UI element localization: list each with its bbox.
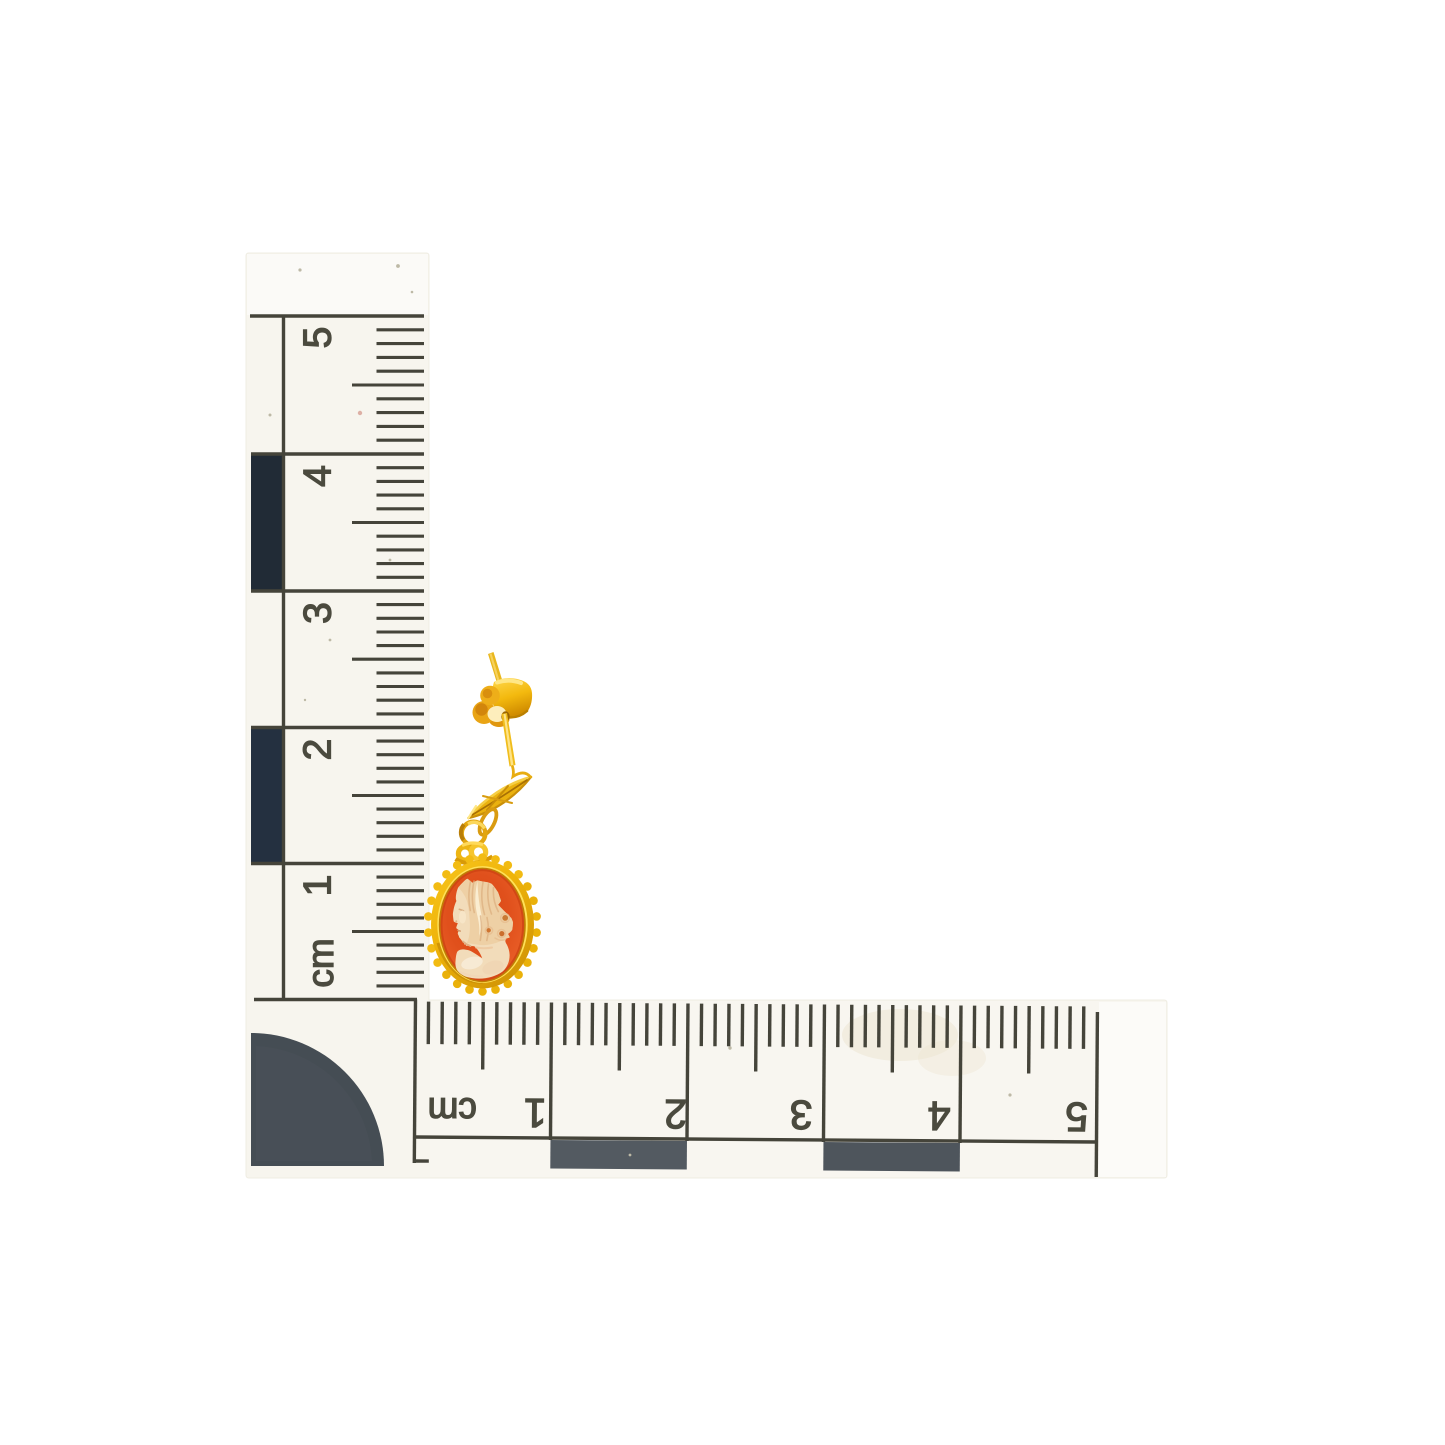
svg-text:5: 5 (1065, 1094, 1088, 1140)
svg-text:4: 4 (297, 465, 340, 487)
svg-text:3: 3 (790, 1092, 813, 1138)
svg-text:cm: cm (300, 938, 341, 987)
svg-text:1: 1 (524, 1090, 547, 1136)
svg-text:5: 5 (297, 327, 340, 349)
svg-text:2: 2 (297, 739, 340, 761)
svg-text:2: 2 (664, 1091, 687, 1137)
svg-text:4: 4 (928, 1093, 951, 1139)
svg-text:cm: cm (427, 1090, 477, 1131)
svg-text:3: 3 (297, 602, 340, 624)
svg-text:1: 1 (297, 875, 340, 897)
